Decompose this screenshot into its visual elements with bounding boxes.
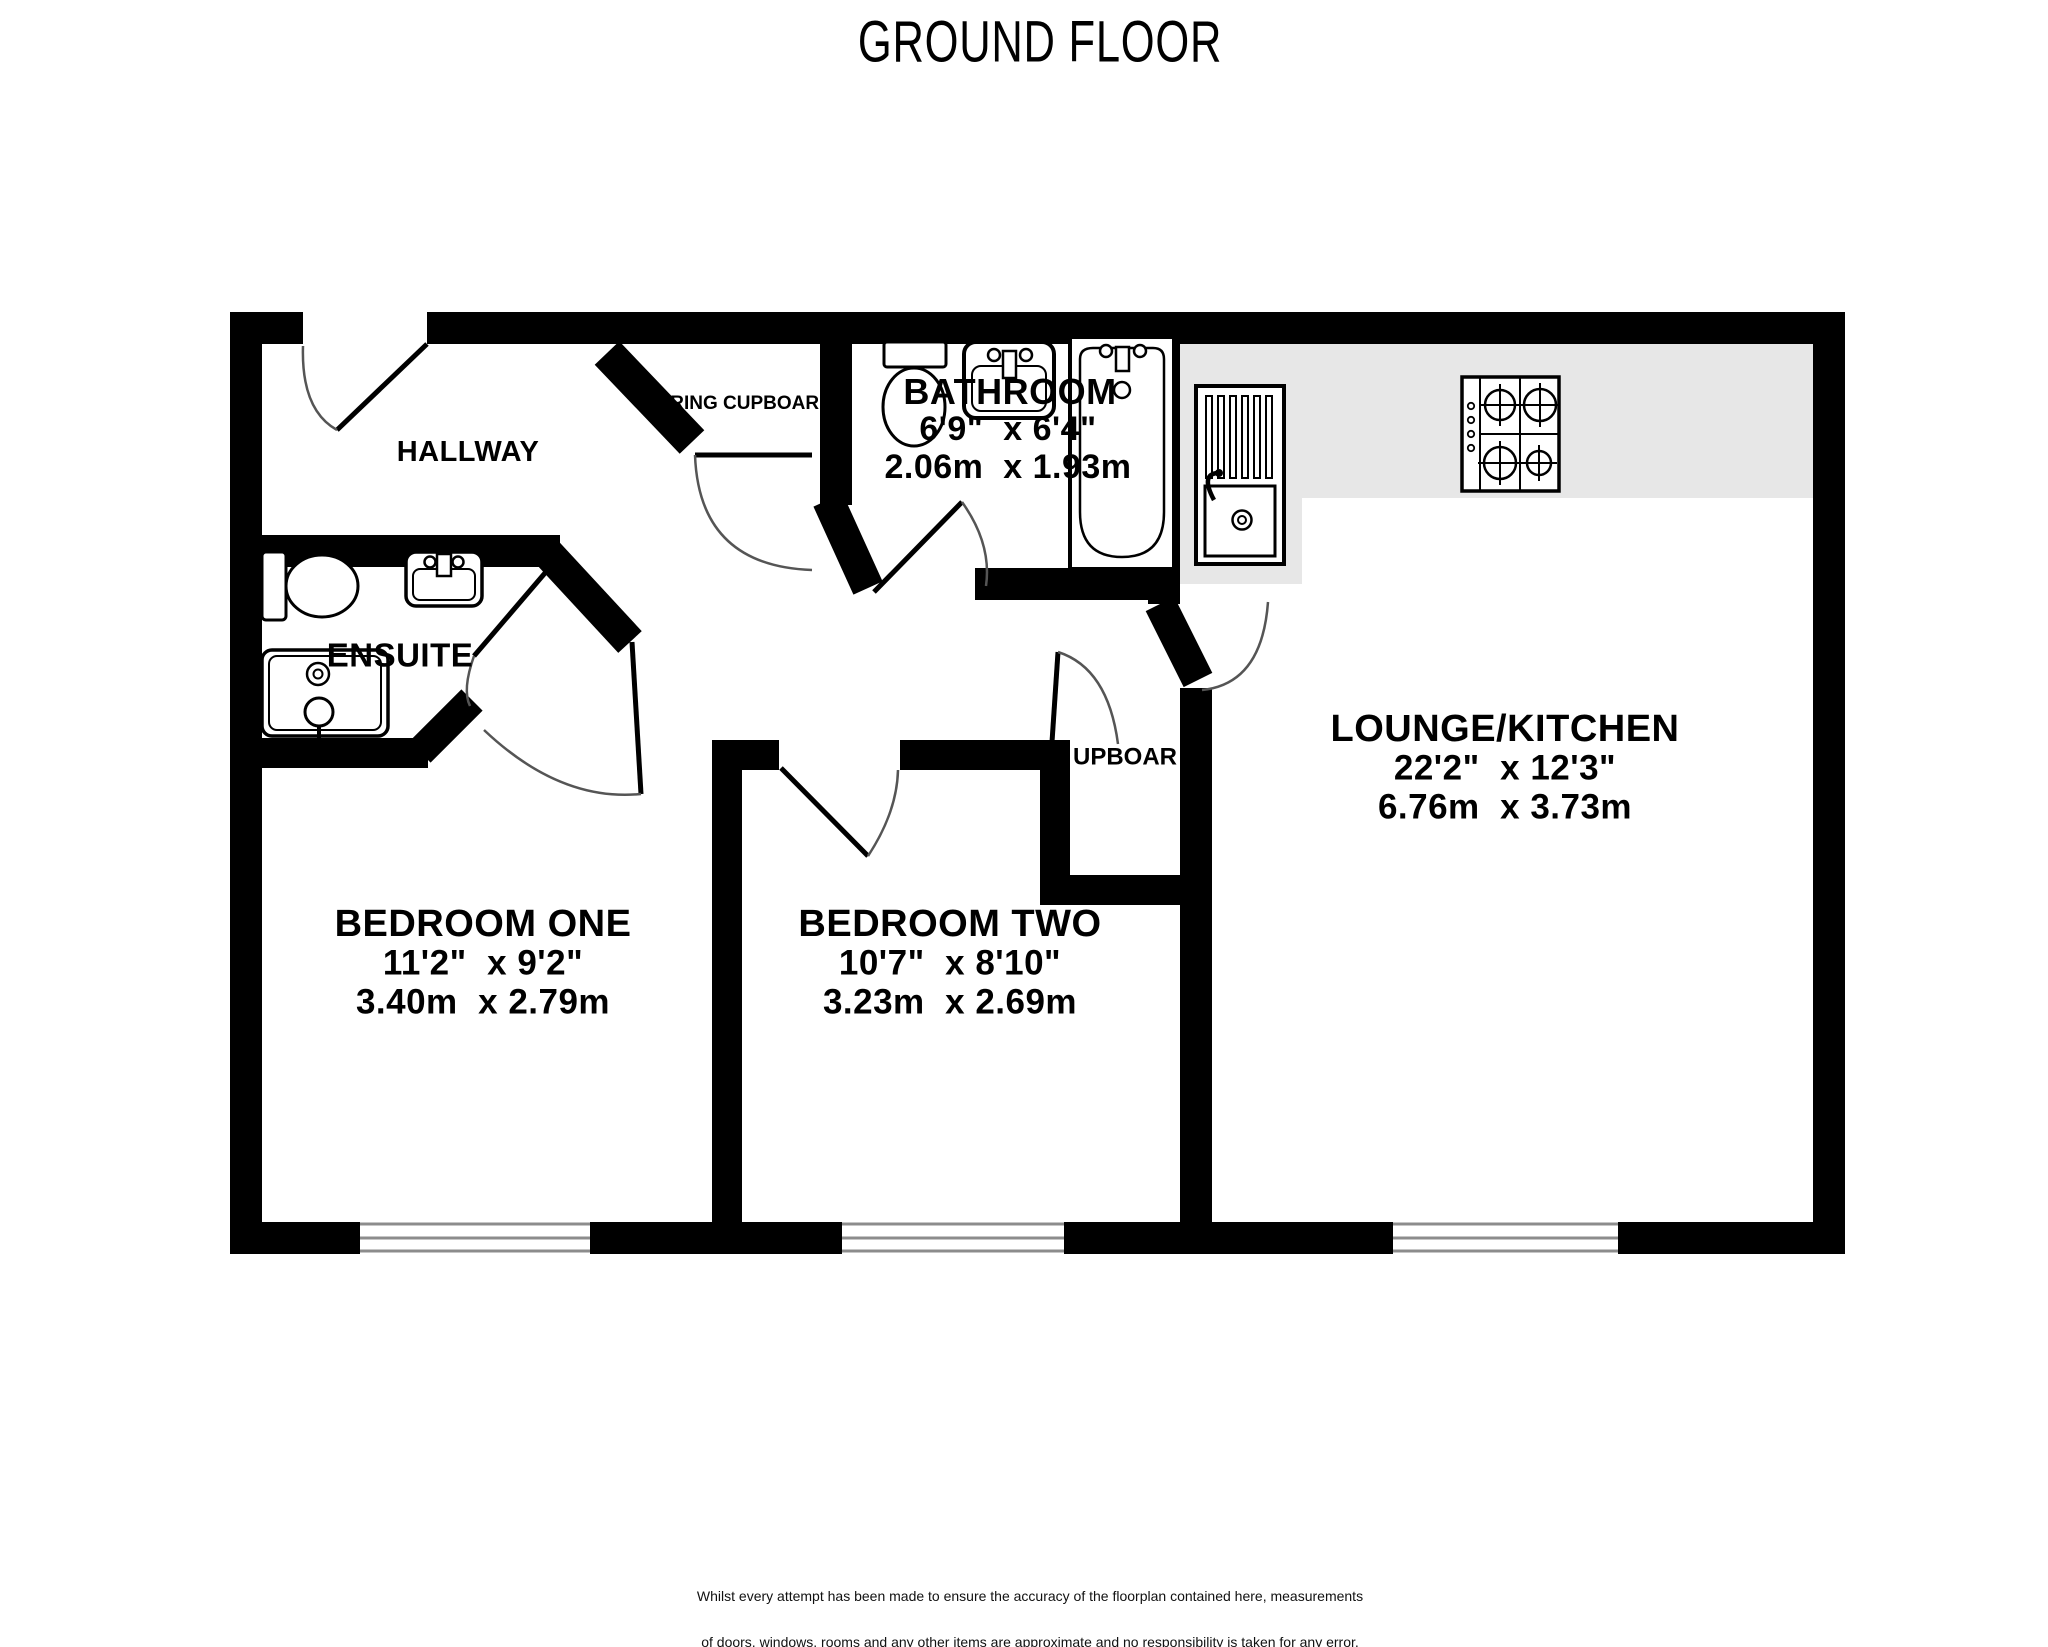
page-title: GROUND FLOOR (858, 9, 1222, 76)
airing-cupboard-label: AIRING CUPBOARD (651, 394, 833, 414)
bedroom-two-door (781, 768, 898, 856)
hob-icon (1462, 377, 1559, 491)
cupboard-label: UPBOAR (1073, 744, 1177, 769)
lounge-door (1202, 602, 1268, 690)
bedroom-one-dims-metric: 3.40m x 2.79m (356, 985, 610, 1022)
hallway-label: HALLWAY (397, 437, 540, 467)
lounge-kitchen-dims-imperial: 22'2" x 12'3" (1394, 751, 1616, 788)
lounge-kitchen-dims-metric: 6.76m x 3.73m (1378, 790, 1632, 827)
airing-cupboard-door (695, 455, 812, 570)
sink-icon (406, 552, 482, 606)
bedroom-one-dims-imperial: 11'2" x 9'2" (383, 946, 583, 983)
bedroom-two-dims-metric: 3.23m x 2.69m (823, 985, 1077, 1022)
ensuite-label: ENSUITE (327, 639, 474, 674)
window-icon (360, 1222, 590, 1254)
hall-cupboard-door (1052, 652, 1118, 744)
toilet-icon (262, 552, 358, 620)
bedroom-one-label: BEDROOM ONE (335, 905, 632, 945)
disclaimer-line: of doors, windows, rooms and any other i… (693, 1635, 1367, 1647)
disclaimer-text: Whilst every attempt has been made to en… (693, 1558, 1367, 1647)
disclaimer-line: Whilst every attempt has been made to en… (693, 1589, 1367, 1604)
lounge-kitchen-label: LOUNGE/KITCHEN (1331, 710, 1680, 750)
bathroom-dims-imperial: 6'9" x 6'4" (919, 412, 1096, 448)
kitchen-sink-icon (1196, 386, 1284, 564)
window-icon (842, 1222, 1064, 1254)
bedroom-two-dims-imperial: 10'7" x 8'10" (839, 946, 1061, 983)
bathroom-dims-metric: 2.06m x 1.93m (884, 450, 1131, 486)
floorplan-page: GROUND FLOOR HALLWAY AIRING CUPBOARD BAT… (0, 0, 2048, 1647)
entrance-door (303, 344, 427, 430)
bathroom-door (874, 502, 987, 592)
window-icon (1393, 1222, 1618, 1254)
floorplan-graphic (0, 0, 2048, 1647)
bedroom-two-label: BEDROOM TWO (798, 905, 1101, 945)
bathroom-label: BATHROOM (903, 373, 1116, 411)
bedroom-one-door (484, 642, 641, 795)
